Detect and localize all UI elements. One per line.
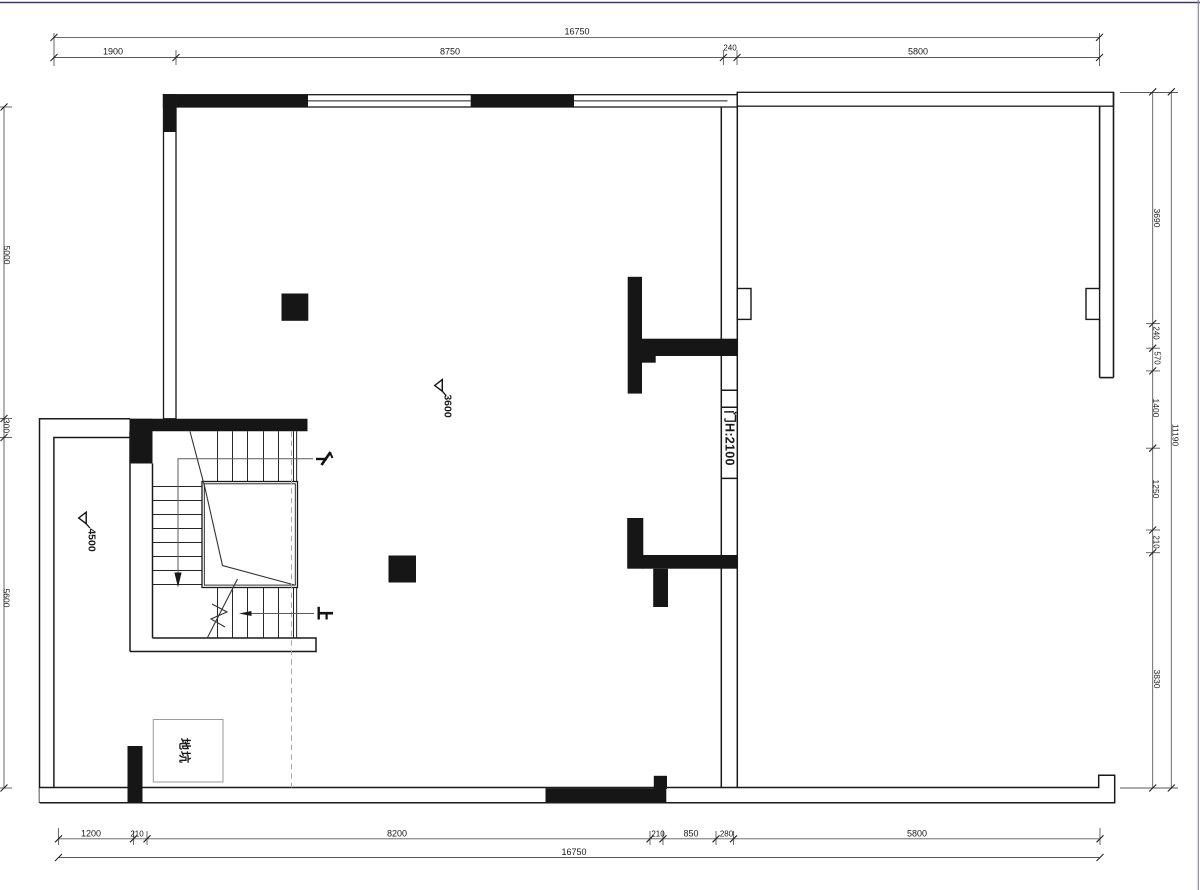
svg-text:11190: 11190 bbox=[1171, 424, 1181, 447]
svg-text:16750: 16750 bbox=[564, 27, 589, 37]
svg-text:300: 300 bbox=[2, 419, 12, 433]
svg-text:210: 210 bbox=[130, 829, 144, 838]
svg-text:1400: 1400 bbox=[1151, 399, 1161, 418]
svg-text:门H:2100: 门H:2100 bbox=[723, 410, 738, 466]
svg-text:地坑: 地坑 bbox=[178, 738, 193, 764]
svg-text:240: 240 bbox=[723, 44, 737, 53]
svg-text:210: 210 bbox=[1152, 535, 1161, 549]
svg-text:1900: 1900 bbox=[103, 47, 123, 57]
svg-text:240: 240 bbox=[1152, 326, 1161, 340]
svg-text:1200: 1200 bbox=[81, 828, 101, 838]
svg-text:8750: 8750 bbox=[440, 47, 460, 57]
svg-text:850: 850 bbox=[683, 828, 698, 838]
svg-text:8200: 8200 bbox=[387, 828, 407, 838]
svg-text:210: 210 bbox=[651, 829, 665, 838]
svg-text:3690: 3690 bbox=[1152, 209, 1162, 228]
svg-text:3600: 3600 bbox=[442, 394, 454, 418]
svg-text:3830: 3830 bbox=[1152, 670, 1162, 689]
svg-text:5600: 5600 bbox=[2, 589, 12, 608]
svg-text:16750: 16750 bbox=[561, 847, 586, 857]
svg-text:570: 570 bbox=[1153, 351, 1162, 365]
svg-text:5800: 5800 bbox=[908, 47, 928, 57]
svg-text:1250: 1250 bbox=[1151, 480, 1161, 499]
svg-text:5000: 5000 bbox=[2, 246, 12, 265]
svg-text:4500: 4500 bbox=[86, 528, 98, 552]
svg-text:280: 280 bbox=[720, 829, 734, 838]
svg-text:5800: 5800 bbox=[907, 828, 927, 838]
